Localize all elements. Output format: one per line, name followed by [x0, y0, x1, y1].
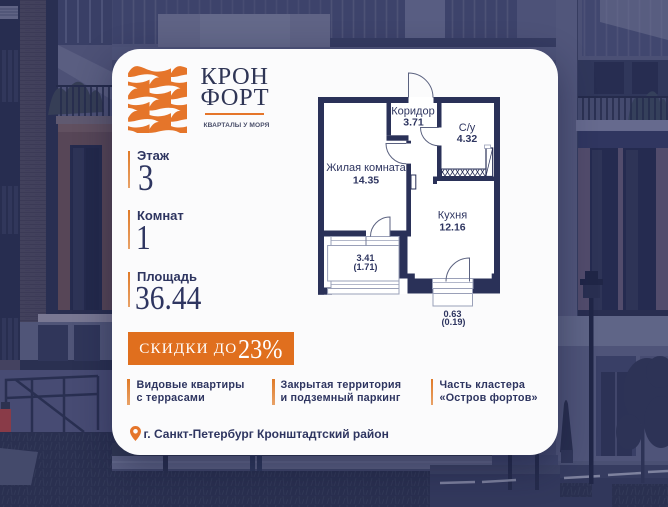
svg-text:(0.19): (0.19)	[441, 317, 465, 327]
svg-text:(1.71): (1.71)	[353, 262, 377, 272]
svg-text:Кухня: Кухня	[438, 210, 467, 222]
svg-text:14.35: 14.35	[353, 175, 379, 187]
svg-text:12.16: 12.16	[439, 222, 465, 234]
svg-text:4.32: 4.32	[457, 133, 478, 145]
svg-text:3.71: 3.71	[403, 117, 424, 129]
svg-text:Жилая комната: Жилая комната	[326, 162, 406, 174]
